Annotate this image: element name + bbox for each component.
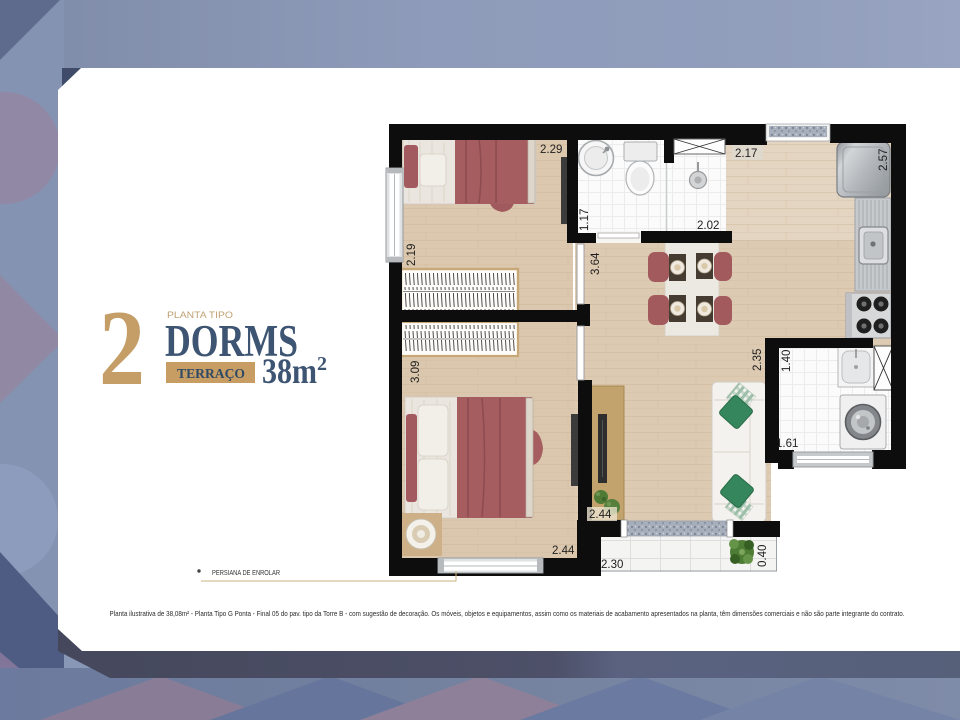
svg-text:1.61: 1.61	[776, 438, 798, 450]
svg-text:PERSIANA DE ENROLAR: PERSIANA DE ENROLAR	[212, 568, 280, 577]
svg-text:2.29: 2.29	[540, 144, 562, 156]
svg-text:2.35: 2.35	[752, 349, 764, 371]
svg-text:1.40: 1.40	[781, 350, 793, 372]
svg-text:2.44: 2.44	[552, 545, 575, 557]
svg-text:2.02: 2.02	[697, 220, 719, 232]
svg-text:2.44: 2.44	[589, 509, 612, 521]
svg-text:Planta ilustrativa de 38,08m²: Planta ilustrativa de 38,08m² - Planta T…	[110, 609, 905, 618]
svg-text:3.09: 3.09	[410, 361, 422, 383]
svg-text:2.17: 2.17	[735, 148, 757, 160]
svg-text:2: 2	[317, 353, 327, 375]
svg-text:2.57: 2.57	[878, 149, 890, 171]
svg-text:2.30: 2.30	[601, 559, 623, 571]
svg-text:38m: 38m	[262, 351, 317, 391]
svg-text:2: 2	[99, 289, 145, 408]
svg-text:3.64: 3.64	[590, 252, 602, 275]
svg-text:TERRAÇO: TERRAÇO	[177, 366, 245, 381]
svg-text:0.40: 0.40	[757, 545, 769, 567]
svg-text:2.19: 2.19	[406, 244, 418, 266]
svg-text:1.17: 1.17	[579, 209, 591, 231]
